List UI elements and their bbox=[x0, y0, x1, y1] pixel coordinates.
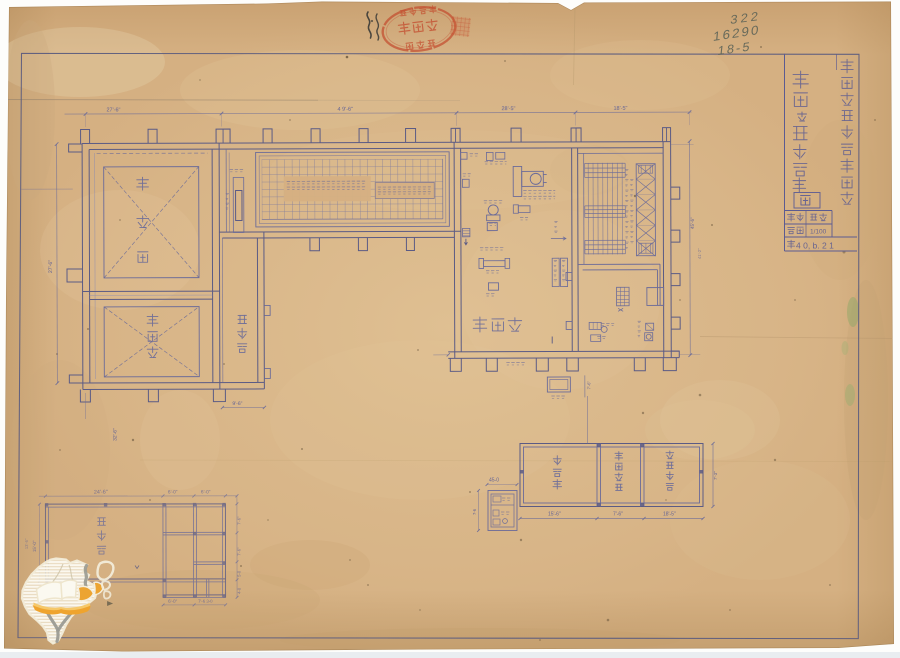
svg-text:7'-6": 7'-6" bbox=[613, 512, 623, 518]
svg-text:7'-6": 7'-6" bbox=[236, 516, 241, 525]
svg-text:6'-0": 6'-0" bbox=[168, 489, 178, 495]
svg-text:4-0: 4-0 bbox=[237, 587, 242, 594]
svg-text:7-6: 7-6 bbox=[472, 508, 477, 515]
svg-text:41'-2": 41'-2" bbox=[697, 248, 702, 259]
svg-text:15'-0": 15'-0" bbox=[32, 540, 37, 552]
svg-text:32'-6": 32'-6" bbox=[112, 428, 118, 441]
svg-text:1/100: 1/100 bbox=[810, 229, 827, 236]
svg-text:18'-5": 18'-5" bbox=[663, 512, 676, 518]
svg-text:5-0: 5-0 bbox=[237, 570, 242, 577]
svg-text:7'-6 3-0: 7'-6 3-0 bbox=[198, 599, 213, 604]
svg-text:45-0: 45-0 bbox=[489, 478, 499, 484]
svg-text:13'-6": 13'-6" bbox=[24, 538, 29, 549]
svg-text:6'-0": 6'-0" bbox=[168, 599, 178, 604]
svg-text:6'-0": 6'-0" bbox=[201, 489, 211, 495]
svg-text:28'-5": 28'-5" bbox=[501, 106, 515, 112]
svg-text:7'-3": 7'-3" bbox=[713, 471, 718, 480]
svg-text:4 9'-6": 4 9'-6" bbox=[337, 107, 353, 113]
svg-text:7'-6": 7'-6" bbox=[586, 381, 591, 390]
svg-text:27'-6": 27'-6" bbox=[48, 260, 54, 273]
svg-text:7'-6": 7'-6" bbox=[236, 547, 241, 556]
svg-text:27'-6": 27'-6" bbox=[106, 107, 120, 113]
svg-text:24'-6": 24'-6" bbox=[94, 490, 108, 496]
svg-text:15'-6": 15'-6" bbox=[548, 512, 561, 518]
svg-text:9'-6": 9'-6" bbox=[232, 401, 242, 407]
svg-text:45'-6": 45'-6" bbox=[690, 217, 695, 229]
svg-text:18'-5": 18'-5" bbox=[613, 106, 627, 112]
svg-text:4 0, b. 2 1: 4 0, b. 2 1 bbox=[796, 241, 834, 251]
